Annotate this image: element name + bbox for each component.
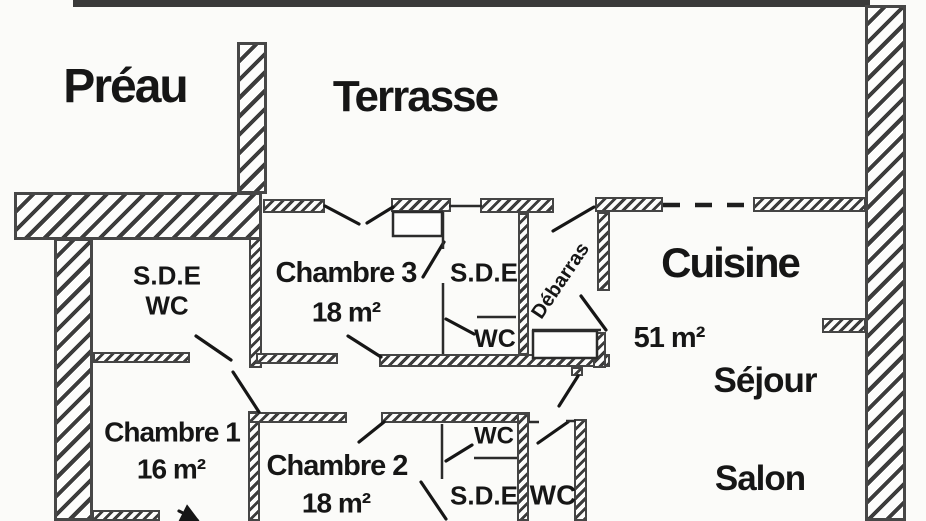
room-label-cuisine: Cuisine — [661, 241, 799, 285]
door-swing-wc-top — [446, 319, 474, 334]
direction-arrow — [179, 511, 197, 520]
area-label-cuisine: 51 m² — [634, 323, 705, 353]
room-label-salon: Salon — [715, 461, 805, 497]
door-swing-sde-top — [423, 242, 444, 277]
room-label-sde-bottom: S.D.E — [450, 482, 518, 509]
room-label-preau: Préau — [63, 62, 186, 112]
door-swing-wc-bottom — [538, 422, 568, 443]
room-label-sde-wc-line2: WC — [145, 292, 188, 319]
closet-box — [533, 331, 597, 358]
room-label-sejour: Séjour — [714, 363, 817, 399]
area-label-chambre2: 18 m² — [302, 488, 370, 517]
door-swing-wc-inner — [446, 445, 472, 461]
room-label-wc-bottom: WC — [530, 480, 577, 509]
door-swing-sde-wc — [196, 336, 231, 360]
door-swing-debarras-low — [581, 296, 606, 330]
door-swing-terrasse-right — [367, 207, 393, 223]
room-label-wc-inner: WC — [474, 425, 514, 450]
room-label-chambre3: Chambre 3 — [276, 258, 417, 288]
door-swing-chambre1 — [233, 372, 259, 412]
door-swing-chambre3 — [348, 336, 381, 357]
door-swing-hall — [559, 376, 578, 406]
window-box — [393, 212, 442, 236]
door-swing-terrasse-left — [325, 206, 359, 224]
room-label-chambre1: Chambre 1 — [104, 417, 240, 446]
area-label-chambre1: 16 m² — [137, 454, 205, 483]
door-swing-sde-bottom — [421, 482, 446, 519]
room-label-sde-wc-line1: S.D.E — [133, 262, 201, 289]
room-label-wc-top: WC — [474, 326, 516, 352]
door-swing-chambre2 — [359, 422, 384, 442]
door-swing-debarras-top — [553, 207, 594, 231]
room-label-sde-top: S.D.E — [450, 259, 518, 286]
room-label-chambre2: Chambre 2 — [267, 451, 408, 481]
area-label-chambre3: 18 m² — [312, 297, 380, 326]
room-label-terrasse: Terrasse — [333, 74, 497, 120]
floor-plan: Préau Terrasse S.D.E WC Chambre 3 18 m² … — [0, 0, 926, 521]
